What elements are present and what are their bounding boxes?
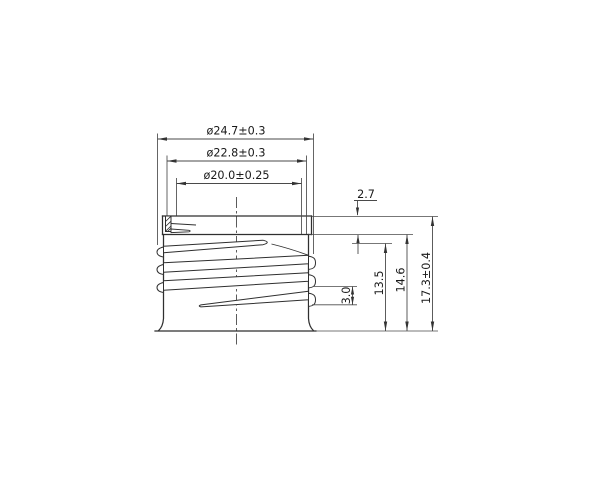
bore-edge-line (171, 224, 196, 226)
thread-bump (309, 256, 316, 269)
drawing-canvas: ø24.7±0.3 ø22.8±0.3 ø20.0±0.25 2.7 3.0 1… (0, 0, 600, 480)
dim-height-below-lip: 14.6 (395, 268, 408, 293)
dim-thread-pitch: 3.0 (340, 287, 353, 305)
thread-wrap-line (272, 244, 309, 255)
extension-lines (158, 134, 439, 332)
thread-tip (157, 265, 164, 275)
thread-band-2 (164, 255, 309, 272)
dim-height-total: 17.3±0.4 (420, 252, 433, 304)
thread-band-4 (199, 291, 308, 307)
thread-bump (309, 275, 316, 288)
dim-dia-mid: ø22.8±0.3 (207, 147, 266, 160)
dim-dia-outer: ø24.7±0.3 (207, 125, 266, 138)
dim-lip-height: 2.7 (357, 188, 375, 201)
thread-band-3 (164, 273, 309, 291)
dim-height-thread: 13.5 (373, 271, 386, 296)
thread-tip (157, 283, 164, 293)
hatch-section (166, 216, 197, 233)
thread-band-1 (164, 240, 268, 253)
thread-tip (157, 247, 164, 257)
technical-drawing-svg: ø24.7±0.3 ø22.8±0.3 ø20.0±0.25 2.7 3.0 1… (0, 0, 600, 480)
dim-dia-bore: ø20.0±0.25 (203, 169, 269, 182)
inner-thread-start (171, 229, 190, 233)
